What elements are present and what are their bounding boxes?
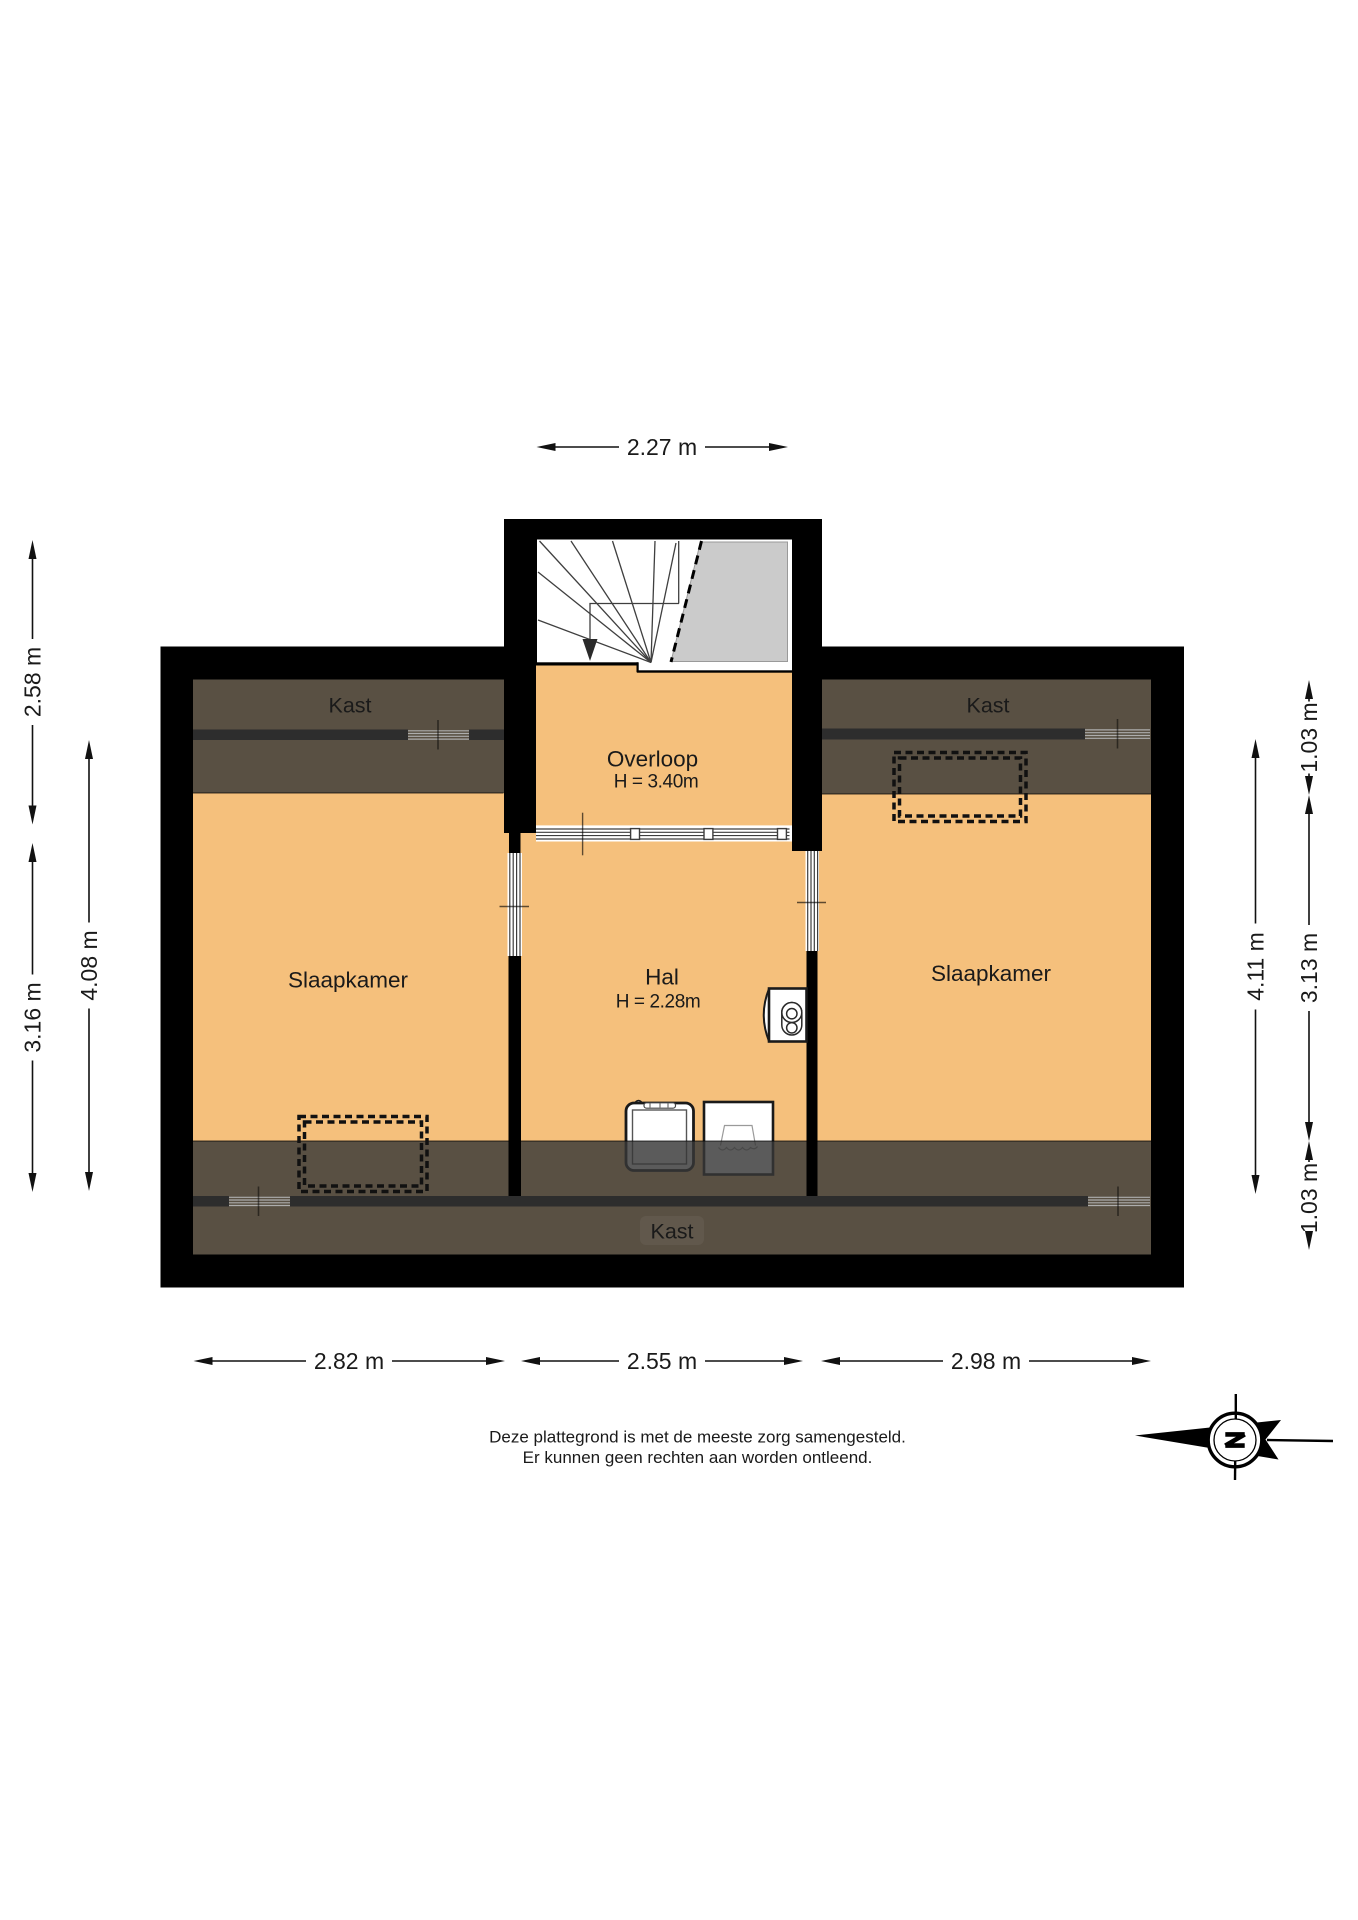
svg-text:3.13 m: 3.13 m <box>1296 933 1322 1003</box>
svg-text:4.08 m: 4.08 m <box>76 930 102 1000</box>
svg-text:Overloop: Overloop <box>607 747 698 772</box>
svg-text:4.11 m: 4.11 m <box>1243 932 1269 1001</box>
svg-text:Slaapkamer: Slaapkamer <box>931 961 1052 986</box>
svg-text:Kast: Kast <box>966 694 1009 718</box>
svg-text:3.16 m: 3.16 m <box>20 982 46 1052</box>
svg-text:2.27 m: 2.27 m <box>627 434 697 460</box>
svg-text:H = 2.28m: H = 2.28m <box>616 992 701 1013</box>
svg-text:2.82 m: 2.82 m <box>314 1348 384 1374</box>
svg-text:1.03 m: 1.03 m <box>1296 1163 1322 1233</box>
svg-text:Er kunnen geen rechten aan wor: Er kunnen geen rechten aan worden ontlee… <box>523 1448 873 1467</box>
svg-text:Slaapkamer: Slaapkamer <box>288 968 409 993</box>
svg-text:Deze plattegrond is met de mee: Deze plattegrond is met de meeste zorg s… <box>489 1428 906 1447</box>
svg-text:Hal: Hal <box>645 965 679 990</box>
svg-text:Kast: Kast <box>328 694 371 718</box>
svg-text:1.03 m: 1.03 m <box>1296 702 1322 772</box>
svg-text:2.58 m: 2.58 m <box>20 647 46 717</box>
svg-text:Kast: Kast <box>650 1220 693 1244</box>
svg-text:2.55 m: 2.55 m <box>627 1348 697 1374</box>
svg-text:2.98 m: 2.98 m <box>951 1348 1021 1374</box>
svg-text:H = 3.40m: H = 3.40m <box>614 772 699 793</box>
